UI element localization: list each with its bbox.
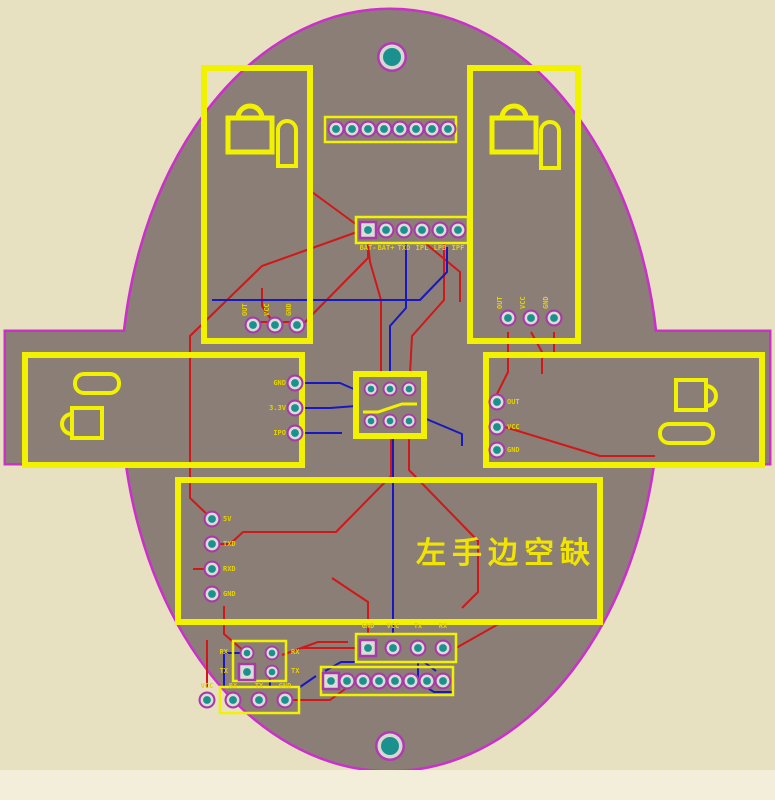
pin-label: RX [229,682,237,690]
pad[interactable] [523,310,540,327]
pad[interactable] [371,673,388,690]
pin-label: 3.3V [250,404,286,412]
center-left-pads[interactable] [287,375,304,442]
pad[interactable] [204,511,221,528]
pad[interactable] [287,375,304,392]
pin-label: OUT [496,296,504,309]
pin-label: TXD [223,540,236,548]
pin-label: TX [255,682,263,690]
pin-label: GND [362,622,375,630]
pin-label: VCC [201,682,214,690]
pad[interactable] [402,414,417,429]
pad[interactable] [402,382,417,397]
pad[interactable] [323,673,339,689]
pad[interactable] [383,414,398,429]
pad[interactable] [267,317,284,334]
pin-label: TX [204,667,228,675]
pin-label: Tx [414,622,422,630]
pin-label: OUT [241,303,249,316]
pad[interactable] [396,222,413,239]
pad[interactable] [360,640,376,656]
pad[interactable] [414,222,431,239]
pad[interactable] [410,640,427,657]
pad[interactable] [403,673,420,690]
pin-label: OUT [507,398,520,406]
pin-label: IPO [250,429,286,437]
pin-label: RX [291,648,299,656]
pin-label: VCC [263,303,271,316]
mounting-hole-bottom[interactable] [375,731,405,761]
pin-label: VCC [387,622,400,630]
pcb-editor-canvas[interactable]: BAT- BAT+ TXD IPL LPB IPF OUT VCC GND OU… [0,0,775,800]
pad[interactable] [378,222,395,239]
pad[interactable] [204,536,221,553]
pin-label: VCC [507,423,520,431]
pad[interactable] [489,442,506,459]
pin-label: RX [439,622,447,630]
pad[interactable] [392,121,409,138]
pad[interactable] [408,121,425,138]
pad[interactable] [344,121,361,138]
pad[interactable] [355,673,372,690]
pad[interactable] [225,692,242,709]
pad[interactable] [432,222,449,239]
pad[interactable] [440,121,457,138]
pad[interactable] [204,586,221,603]
pin-label: GND [279,682,292,690]
pin-label: TXD [398,244,411,252]
pad[interactable] [489,419,506,436]
pin-label: GND [285,303,293,316]
pin-label: 5V [223,515,231,523]
pad[interactable] [265,665,280,680]
pad[interactable] [240,646,255,661]
pin-label: TX [291,667,299,675]
pad[interactable] [199,692,216,709]
pad[interactable] [450,222,467,239]
silkscreen-note-text: 左手边空缺 [416,528,596,572]
pad[interactable] [435,673,452,690]
pin-label: GND [223,590,236,598]
pin-label: GND [250,379,286,387]
pin-label: GND [507,446,520,454]
pad[interactable] [339,673,356,690]
pad[interactable] [265,646,280,661]
pad[interactable] [277,692,294,709]
pin-label: GND [542,296,550,309]
pin-label: LPB [434,244,447,252]
pad[interactable] [287,425,304,442]
mounting-hole-top[interactable] [377,42,407,72]
pin-label: IPF [452,244,465,252]
pin-label: BAT- [360,244,377,252]
pad[interactable] [419,673,436,690]
left-sensor-pads[interactable] [245,317,306,334]
pin-label: VCC [519,296,527,309]
pad[interactable] [328,121,345,138]
pad[interactable] [435,640,452,657]
pad[interactable] [383,382,398,397]
pad[interactable] [376,121,393,138]
pin-label: RX [204,648,228,656]
pad[interactable] [204,561,221,578]
right-module-pads[interactable] [489,394,506,459]
pin-label: IPL [416,244,429,252]
pcb-layout [0,0,775,800]
watermark-strip: www.cntronics.com [0,770,775,800]
pad[interactable] [239,664,255,680]
right-sensor-pads[interactable] [500,310,563,327]
pad[interactable] [546,310,563,327]
pad[interactable] [251,692,268,709]
pad[interactable] [387,673,404,690]
pad[interactable] [364,382,379,397]
pad[interactable] [489,394,506,411]
pad[interactable] [287,400,304,417]
pad[interactable] [385,640,402,657]
pad[interactable] [289,317,306,334]
pad[interactable] [360,121,377,138]
pad[interactable] [360,222,376,238]
pad[interactable] [424,121,441,138]
pad[interactable] [500,310,517,327]
pad[interactable] [245,317,262,334]
pin-label: BAT+ [378,244,395,252]
pin-label: RXD [223,565,236,573]
pad[interactable] [364,414,379,429]
